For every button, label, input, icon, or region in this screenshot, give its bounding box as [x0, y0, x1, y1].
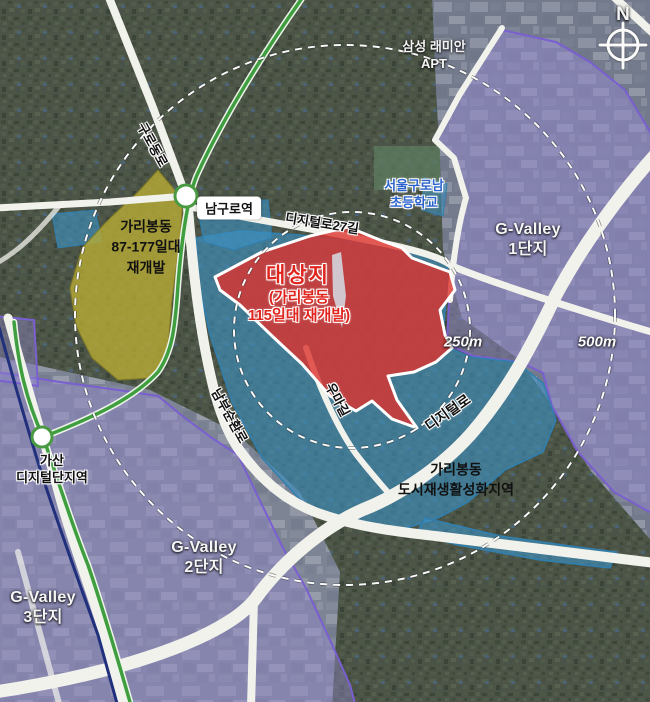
namguro-station-marker	[175, 185, 197, 207]
blue-patch-school	[422, 178, 447, 216]
map-graphics	[0, 0, 650, 702]
gasan-station-marker	[32, 427, 52, 447]
road-digitalro-south	[251, 600, 254, 702]
satellite-map: N 삼성 래미안 APT 서울구로남 초등학교 G-Valley 1단지 G-V…	[0, 0, 650, 702]
namguro-station-label: 남구로역	[197, 197, 261, 220]
